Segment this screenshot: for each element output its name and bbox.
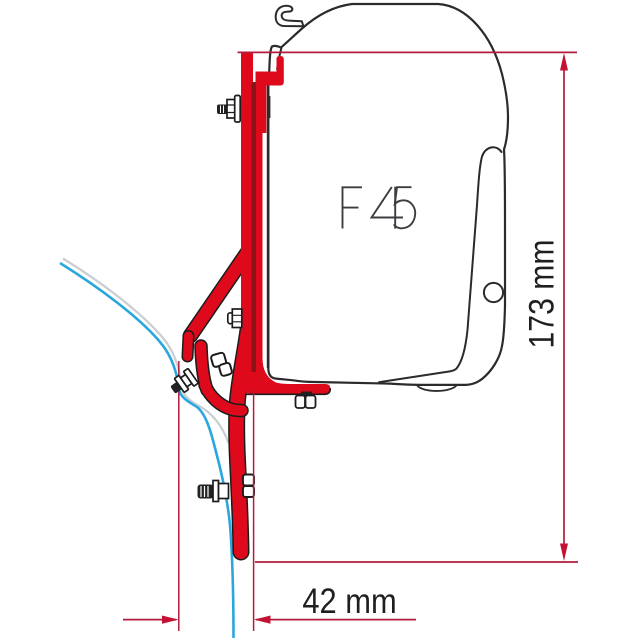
svg-text:173 mm: 173 mm xyxy=(521,240,561,349)
svg-text:42 mm: 42 mm xyxy=(302,582,396,621)
